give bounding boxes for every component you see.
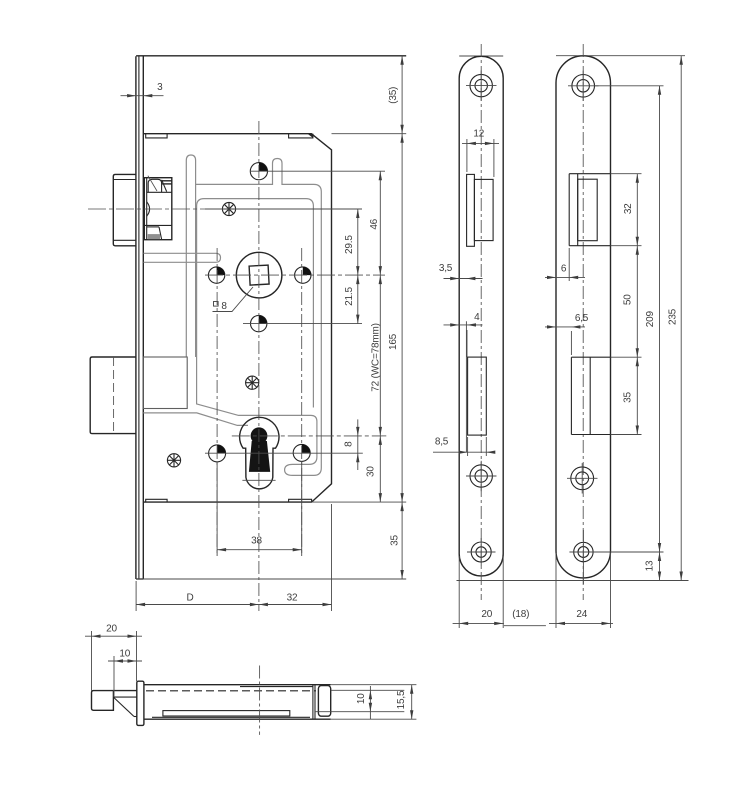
svg-text:3: 3 — [157, 82, 163, 93]
svg-text:10: 10 — [119, 649, 130, 660]
svg-text:29.5: 29.5 — [344, 235, 355, 254]
svg-text:32: 32 — [287, 592, 298, 603]
svg-text:D: D — [186, 592, 193, 603]
svg-text:32: 32 — [623, 203, 634, 214]
svg-text:4: 4 — [474, 312, 480, 323]
svg-text:35: 35 — [390, 535, 401, 546]
svg-text:72 (WC=78mm): 72 (WC=78mm) — [370, 323, 381, 391]
svg-text:30: 30 — [366, 466, 377, 477]
svg-text:(18): (18) — [512, 609, 529, 620]
svg-text:8: 8 — [343, 441, 354, 447]
svg-text:6,5: 6,5 — [575, 313, 589, 324]
svg-text:46: 46 — [369, 218, 380, 229]
svg-text:8: 8 — [221, 301, 227, 312]
svg-text:12: 12 — [473, 129, 484, 140]
svg-text:35: 35 — [623, 392, 634, 403]
svg-text:(35): (35) — [388, 87, 399, 104]
svg-text:8,5: 8,5 — [435, 437, 449, 448]
svg-text:209: 209 — [645, 311, 656, 328]
svg-text:165: 165 — [388, 333, 399, 350]
svg-text:21.5: 21.5 — [344, 287, 355, 306]
svg-text:3,5: 3,5 — [439, 263, 453, 274]
svg-text:235: 235 — [668, 308, 679, 325]
svg-text:50: 50 — [623, 294, 634, 305]
svg-text:20: 20 — [481, 609, 492, 620]
svg-text:15,5: 15,5 — [396, 690, 407, 709]
svg-text:13: 13 — [645, 560, 656, 571]
svg-text:10: 10 — [356, 693, 367, 704]
svg-text:38: 38 — [251, 535, 262, 546]
svg-text:6: 6 — [561, 264, 567, 275]
svg-text:24: 24 — [576, 609, 587, 620]
svg-text:20: 20 — [106, 623, 117, 634]
